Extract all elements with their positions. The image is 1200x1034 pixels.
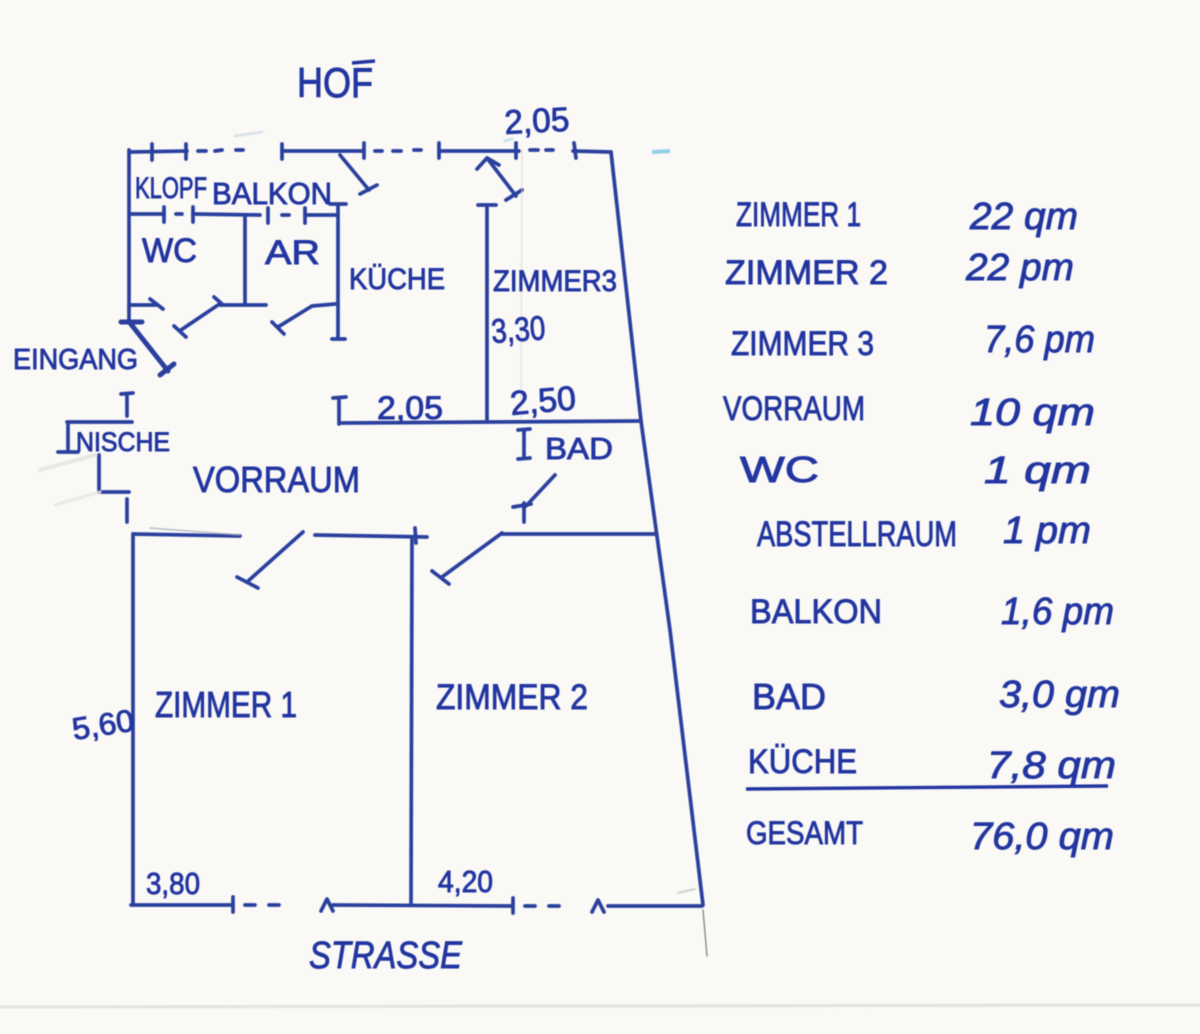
svg-text:EINGANG: EINGANG [13, 344, 138, 376]
svg-text:3,0 gm: 3,0 gm [999, 674, 1120, 716]
svg-text:ZIMMER 2: ZIMMER 2 [436, 678, 588, 717]
svg-text:ZIMMER 1: ZIMMER 1 [155, 684, 297, 725]
svg-text:10 qm: 10 qm [970, 392, 1095, 434]
svg-text:BALKON: BALKON [212, 176, 332, 211]
svg-text:1 pm: 1 pm [1003, 510, 1091, 552]
svg-text:1 qm: 1 qm [984, 450, 1091, 492]
svg-text:WC: WC [740, 449, 819, 490]
svg-text:22 pm: 22 pm [965, 247, 1074, 289]
svg-text:BAD: BAD [752, 676, 826, 717]
svg-text:WC: WC [142, 232, 197, 270]
svg-text:3,30: 3,30 [490, 309, 547, 351]
svg-text:2,05: 2,05 [503, 101, 570, 142]
svg-text:2,05: 2,05 [377, 390, 443, 426]
svg-text:ZIMMER 2: ZIMMER 2 [725, 254, 888, 292]
svg-text:1,6 pm: 1,6 pm [1001, 591, 1114, 633]
svg-text:STRASSE: STRASSE [309, 935, 463, 977]
svg-text:VORRAUM: VORRAUM [723, 390, 865, 428]
svg-text:ZIMMER 1: ZIMMER 1 [736, 196, 861, 234]
svg-text:BALKON: BALKON [750, 593, 882, 631]
svg-text:HOF: HOF [297, 59, 373, 106]
svg-text:3,80: 3,80 [146, 866, 200, 901]
svg-text:7,8 qm: 7,8 qm [987, 745, 1116, 787]
svg-text:ABSTELLRAUM: ABSTELLRAUM [757, 515, 957, 554]
svg-text:22 qm: 22 qm [969, 196, 1078, 238]
svg-text:VORRAUM: VORRAUM [193, 459, 360, 500]
svg-text:KÜCHE: KÜCHE [349, 263, 445, 296]
svg-text:KÜCHE: KÜCHE [748, 743, 857, 781]
svg-text:7,6 pm: 7,6 pm [984, 319, 1095, 361]
svg-text:KLOPF: KLOPF [135, 172, 207, 205]
svg-text:NISCHE: NISCHE [76, 427, 170, 457]
svg-text:2,50: 2,50 [508, 379, 577, 423]
svg-text:GESAMT: GESAMT [746, 815, 863, 851]
svg-text:AR: AR [265, 234, 320, 272]
svg-text:76,0 qm: 76,0 qm [970, 816, 1114, 858]
svg-text:BAD: BAD [545, 431, 613, 466]
svg-text:ZIMMER 3: ZIMMER 3 [731, 325, 874, 363]
svg-text:4,20: 4,20 [438, 864, 493, 899]
svg-text:ZIMMER3: ZIMMER3 [493, 265, 617, 298]
